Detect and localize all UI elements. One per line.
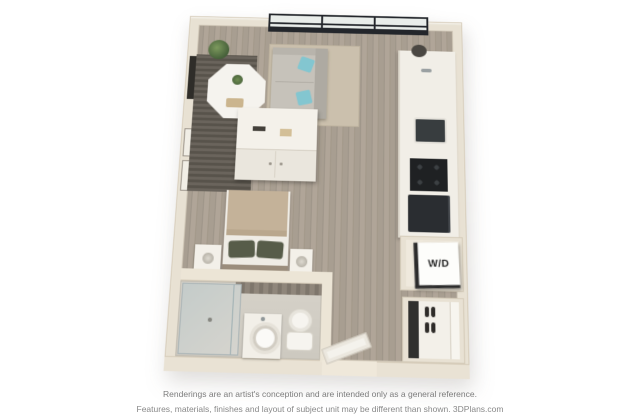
window-pane — [323, 25, 374, 29]
shoe — [425, 322, 429, 333]
console-cabinet — [234, 107, 317, 180]
lamp — [296, 256, 308, 267]
floorplan: W/D — [164, 16, 470, 379]
bed-blanket — [226, 190, 288, 237]
window — [268, 13, 428, 35]
nightstand — [193, 244, 221, 271]
remote — [253, 126, 266, 131]
cooktop — [410, 158, 448, 191]
bathroom-vanity — [242, 313, 282, 359]
bed — [222, 190, 290, 275]
sofa-armrest — [273, 47, 316, 55]
teal-pillow — [295, 90, 312, 106]
window-pane — [270, 24, 321, 28]
sofa-cushion-seam — [275, 81, 313, 83]
sofa-back — [314, 48, 328, 118]
window-pane — [270, 15, 321, 23]
shower-drain — [208, 318, 212, 322]
shower-glass-door — [230, 285, 235, 354]
teal-pillow — [297, 56, 315, 73]
nightstand — [290, 249, 313, 274]
washer-dryer: W/D — [413, 242, 460, 288]
shoe — [425, 307, 429, 318]
vessel-sink — [249, 322, 282, 355]
kitchen-sink — [414, 117, 447, 144]
table-plant — [232, 75, 243, 85]
window-pane — [376, 18, 427, 26]
kitchen-faucet — [421, 69, 432, 73]
page: W/D Renderings are an artist's conceptio… — [0, 0, 640, 415]
bathroom-tile-wall — [235, 282, 322, 296]
closet-door — [450, 302, 460, 359]
bed-pillow — [228, 240, 254, 258]
floorplan-scene: W/D — [0, 0, 640, 392]
sink-faucet — [261, 317, 265, 321]
window-pane — [376, 26, 427, 30]
disclaimer: Renderings are an artist's conception an… — [0, 388, 640, 415]
toilet-tank — [286, 331, 314, 351]
kitchen-bowl — [411, 45, 426, 58]
window-pane — [323, 17, 374, 25]
table-tray — [226, 98, 244, 108]
bed-pillow — [256, 240, 284, 259]
refrigerator — [408, 195, 451, 233]
disclaimer-line1: Renderings are an artist's conception an… — [0, 388, 640, 401]
closet-back-panel — [408, 301, 419, 358]
shoe — [431, 307, 435, 318]
shoe — [431, 322, 435, 333]
disclaimer-line2: Features, materials, finishes and layout… — [0, 403, 640, 415]
lamp — [202, 253, 214, 264]
glass-shower — [177, 283, 241, 356]
book — [280, 129, 292, 137]
